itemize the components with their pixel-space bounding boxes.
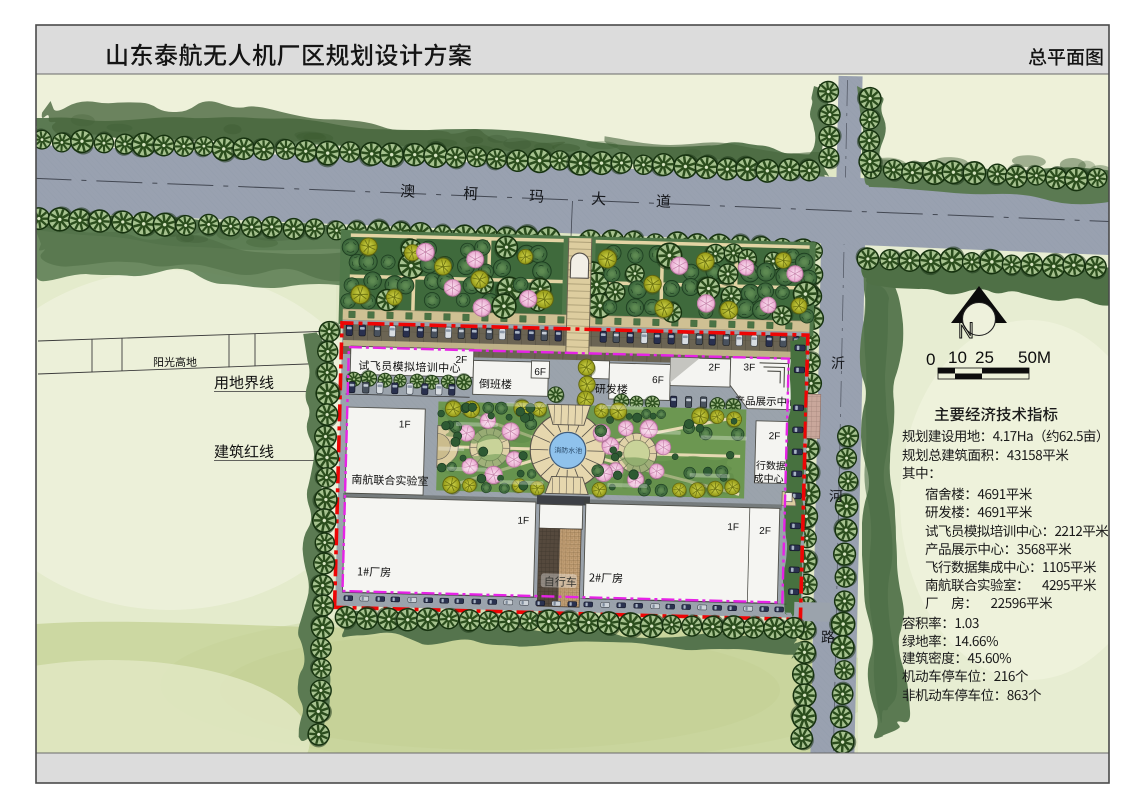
svg-text:6F: 6F xyxy=(652,375,664,386)
svg-text:0: 0 xyxy=(926,350,935,369)
svg-text:2F: 2F xyxy=(759,526,771,537)
svg-text:6F: 6F xyxy=(534,367,546,378)
svg-text:2F: 2F xyxy=(708,363,720,374)
svg-text:25: 25 xyxy=(975,348,994,367)
svg-text:2F: 2F xyxy=(769,431,781,442)
svg-text:3F: 3F xyxy=(743,362,755,373)
svg-text:2F: 2F xyxy=(455,355,467,366)
svg-text:1F: 1F xyxy=(399,419,411,430)
svg-text:10: 10 xyxy=(948,348,967,367)
svg-text:1F: 1F xyxy=(727,522,739,533)
svg-text:50M: 50M xyxy=(1018,348,1051,367)
svg-text:1F: 1F xyxy=(517,516,529,527)
svg-text:N: N xyxy=(958,318,974,343)
